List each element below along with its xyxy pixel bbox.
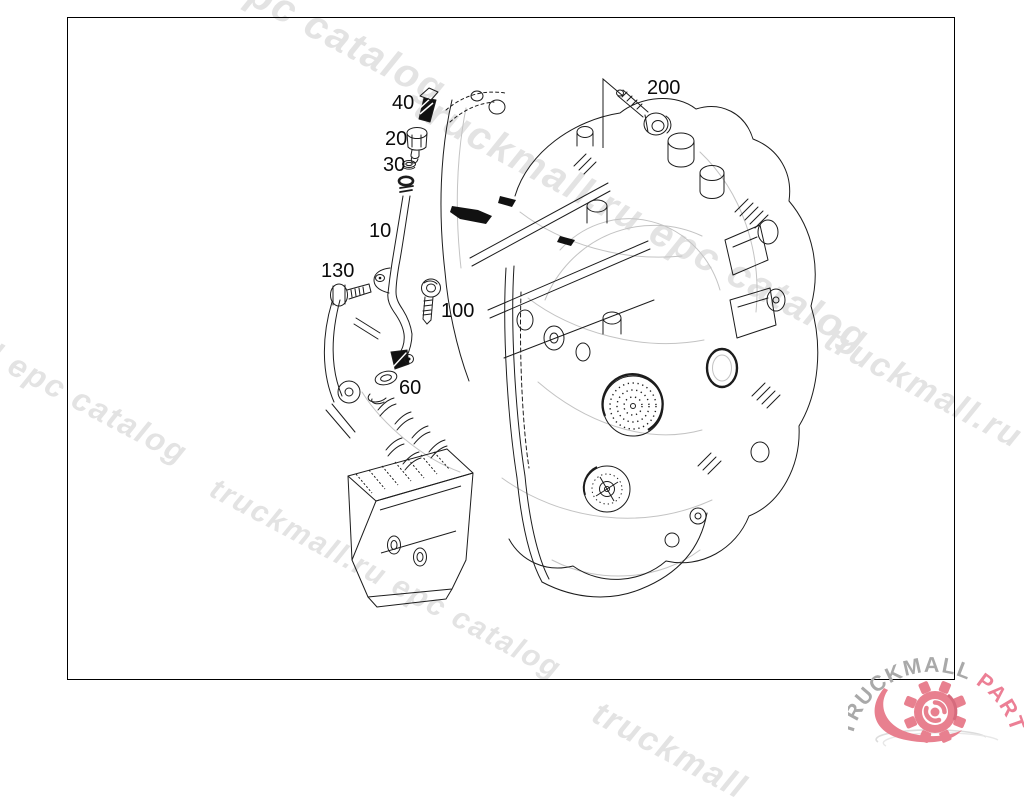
callout-label-100[interactable]: 100 <box>441 301 474 321</box>
brand-logo: TRUCKMALL PARTS <box>848 650 1024 750</box>
callout-label-20[interactable]: 20 <box>385 129 407 149</box>
callout-label-130[interactable]: 130 <box>321 261 354 281</box>
plug-icon-20 <box>407 128 427 164</box>
callout-label-200[interactable]: 200 <box>647 78 680 98</box>
dipstick-tube <box>368 177 413 404</box>
transmission-drawing <box>0 0 1024 750</box>
bolt-icon-100 <box>422 279 441 324</box>
bell-housing <box>441 91 818 597</box>
pin-icon-40 <box>419 88 438 122</box>
callout-label-60[interactable]: 60 <box>399 378 421 398</box>
callout-label-40[interactable]: 40 <box>392 93 414 113</box>
oil-pan <box>348 449 473 607</box>
callout-label-30[interactable]: 30 <box>383 155 405 175</box>
flywheel <box>603 374 663 436</box>
shadow-blotches <box>450 196 575 246</box>
secondary-contours <box>362 108 757 576</box>
bolt-icon-130 <box>331 284 372 306</box>
pump-pulley <box>584 466 630 512</box>
callout-label-10[interactable]: 10 <box>369 221 391 241</box>
